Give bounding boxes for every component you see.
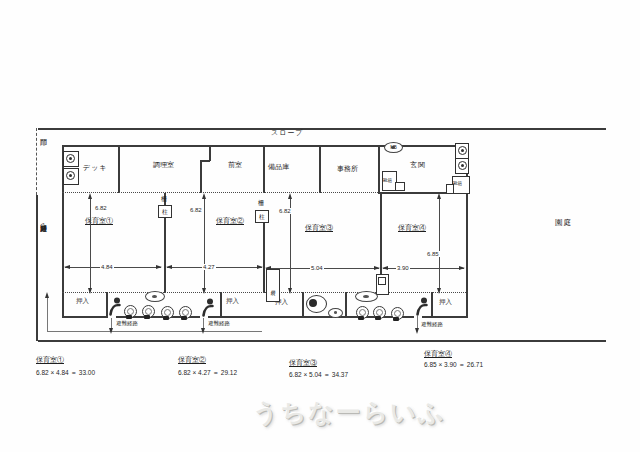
wall-kitchen-anteroom-a <box>209 145 211 161</box>
child-toilet-icon <box>124 305 137 318</box>
gate-dashed-line <box>36 128 37 195</box>
child-toilet-icon <box>391 307 404 320</box>
closet-label-2: 押入 <box>226 298 239 305</box>
washing-machine-icon <box>455 158 469 174</box>
dim-arrow <box>257 265 263 269</box>
wall-closet2 <box>220 292 222 316</box>
wall-room2-room3 <box>263 221 265 293</box>
dim-arrow <box>202 288 206 294</box>
wall-kitchen-anteroom-c <box>200 160 202 193</box>
summary-room4-title: 保育室④ <box>424 350 452 357</box>
summary-room3-title: 保育室③ <box>289 359 317 366</box>
sink-icon <box>328 308 343 318</box>
evac-route-label-3: 避難経路 <box>421 322 443 328</box>
dim-arrow <box>202 193 206 199</box>
room-office-label: 事務所 <box>337 165 358 172</box>
person-icon <box>107 296 121 316</box>
partition-line-lower <box>62 292 466 293</box>
dim-arrow <box>437 193 441 199</box>
dim-arrow <box>88 193 92 199</box>
dim-arrow <box>288 193 292 199</box>
evac-to-gate-label: 避難経路・門扉へ <box>40 220 47 227</box>
evac-ground-line <box>48 331 262 332</box>
dim-line-room2-h <box>204 196 205 290</box>
dim-room2-height: 6.82 <box>189 207 203 213</box>
wall-bottom-seg <box>422 316 468 318</box>
dim-room4-height: 6.85 <box>426 251 440 257</box>
summary-room2-title: 保育室② <box>178 356 206 363</box>
dim-arrow <box>64 265 70 269</box>
dim-arrow <box>88 288 92 294</box>
dim-room2-width: 4.27 <box>202 264 216 270</box>
dim-arrow <box>437 288 441 294</box>
meter-box-oval: MB <box>384 142 403 153</box>
evac-route-label-1: 避難経路 <box>116 321 138 327</box>
nursery-room-4-label: 保育室④ <box>398 224 426 231</box>
door-pocket-box-1: 戸袋 <box>266 269 280 302</box>
garden-label: 園庭 <box>555 219 572 227</box>
dim-arrow <box>288 288 292 294</box>
shoe-cabinet-left-label: 靴箱 <box>383 179 392 184</box>
wall-toilet-room-right <box>345 292 347 316</box>
wall-toilet-room-left <box>302 292 304 316</box>
wall-closet4 <box>431 292 433 316</box>
sink-icon <box>145 291 165 302</box>
summary-room3-formula: 6.82 × 5.04 ＝ 34.37 <box>289 372 348 379</box>
meter-box-label: MB <box>390 145 397 150</box>
nursery-room-2-label: 保育室② <box>216 217 244 224</box>
room-kitchen-label: 調理室 <box>153 161 174 168</box>
child-toilet-icon <box>142 305 155 318</box>
wall-top <box>62 145 468 147</box>
wall-anteroom-storage <box>263 145 265 193</box>
dim-arrow <box>166 265 172 269</box>
dim-room3-height: 6.82 <box>278 208 292 214</box>
shoe-cabinet-left-step <box>395 182 405 191</box>
dim-room3-width: 5.04 <box>310 265 324 271</box>
summary-room1-formula: 6.82 × 4.84 ＝ 33.00 <box>36 370 95 377</box>
slope-label: スロープ <box>271 129 304 136</box>
evac-up-arrow-icon <box>45 292 49 298</box>
dim-room1-width: 4.84 <box>100 264 114 270</box>
dim-room4-width: 3.90 <box>396 265 410 271</box>
room-storage-label: 備品庫 <box>268 163 289 170</box>
summary-room4-formula: 6.85 × 3.90 ＝ 26.71 <box>424 362 483 369</box>
dim-room1-height: 6.82 <box>94 205 108 211</box>
evac-down-arrow-icon <box>415 328 419 334</box>
site-boundary-bottom <box>38 340 606 342</box>
evac-down-arrow-icon <box>109 328 113 334</box>
child-toilet-icon <box>373 306 386 319</box>
shoe-cabinet-right-label: 靴箱 <box>453 182 462 187</box>
site-boundary-top <box>38 128 606 130</box>
child-toilet-icon <box>179 306 192 319</box>
person-icon <box>414 296 428 316</box>
summary-room1-title: 保育室① <box>36 356 64 363</box>
closet-label-1: 押入 <box>76 298 89 305</box>
closet-label-4: 押入 <box>439 299 452 306</box>
washing-machine-icon <box>63 151 79 167</box>
dim-line-room1-h <box>90 196 91 290</box>
pillar-box-1: 柱 <box>158 205 172 218</box>
site-boundary-left <box>36 195 38 341</box>
fence-label-1: 柵 <box>161 196 167 202</box>
washing-machine-icon <box>455 143 469 159</box>
evac-route-label-2: 避難経路 <box>208 321 230 327</box>
child-toilet-icon <box>356 306 369 319</box>
fence-label-2: 柵 <box>258 200 264 206</box>
nursery-room-3-label: 保育室③ <box>305 224 333 231</box>
dim-line-room4-h <box>439 196 440 290</box>
person-icon <box>200 297 214 317</box>
wall-office-entrance <box>378 145 380 193</box>
evac-down-arrow-icon <box>201 328 205 334</box>
wall-kitchen-anteroom-b <box>200 160 210 162</box>
summary-room2-formula: 6.82 × 4.27 ＝ 29.12 <box>178 370 237 377</box>
dim-arrow <box>382 266 388 270</box>
dim-arrow <box>156 265 162 269</box>
dim-arrow <box>459 266 465 270</box>
wall-bottom-seg <box>62 316 108 318</box>
dim-arrow <box>374 266 380 270</box>
room-entrance-label: 玄関 <box>410 161 426 168</box>
room-deck-label: デッキ <box>83 164 108 171</box>
child-toilet-icon <box>161 306 174 319</box>
watermark-logo: うちなーらいふ <box>253 396 446 429</box>
wall-deck-kitchen <box>118 145 120 193</box>
sink-icon <box>355 291 378 302</box>
toilet-icon <box>306 295 327 313</box>
room-anteroom-label: 前室 <box>228 161 242 168</box>
door-pocket-inner <box>378 277 386 285</box>
wall-storage-office <box>319 145 321 193</box>
floor-plan-page: スロープ 門扉 避難経路・門扉へ 園庭 デッキ 調理室 前室 備品庫 事務所 玄… <box>0 0 640 452</box>
evac-arrow-line <box>47 298 48 332</box>
washing-machine-icon <box>63 168 79 185</box>
pillar-box-2: 柱 <box>255 210 269 223</box>
